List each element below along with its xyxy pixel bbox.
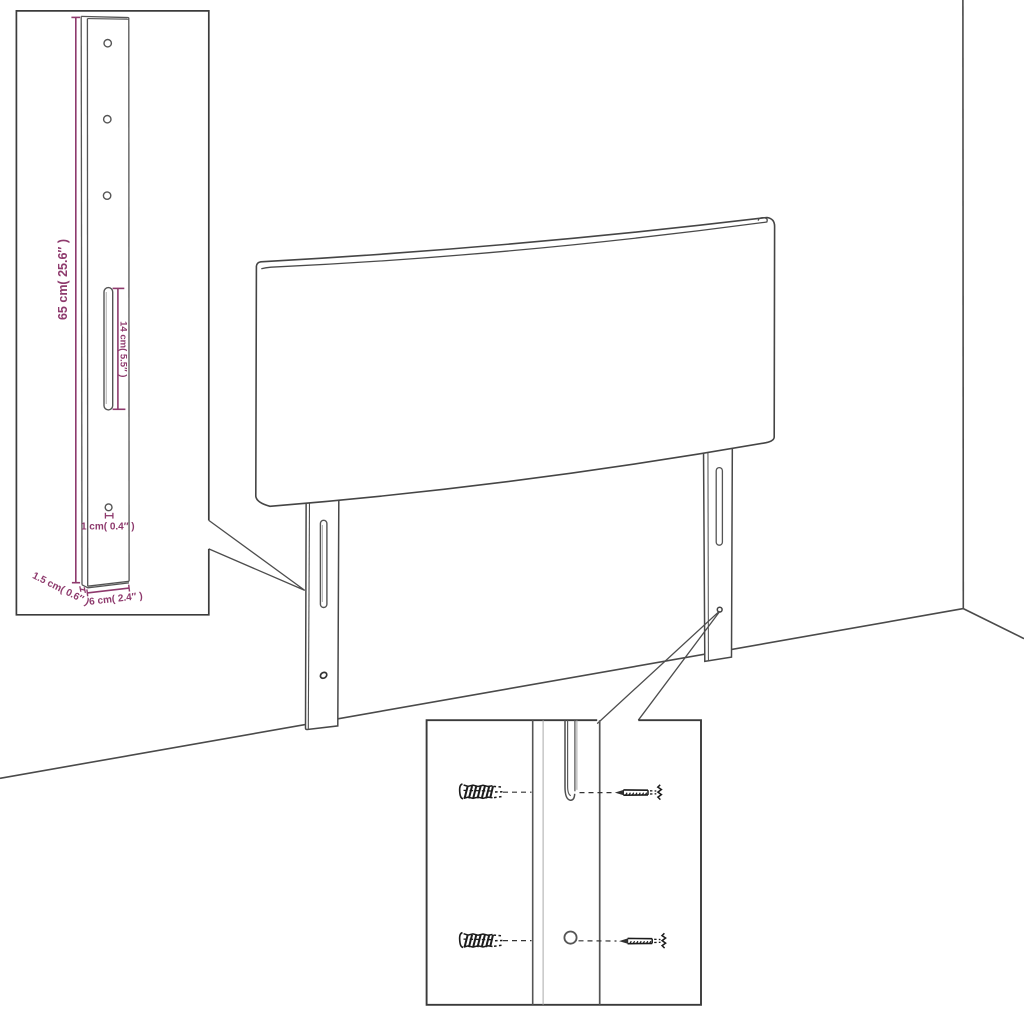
svg-text:1 cm( 0.4″ ): 1 cm( 0.4″ ) [81,522,135,533]
svg-text:65 cm( 25.6″ ): 65 cm( 25.6″ ) [56,239,70,320]
svg-text:14 cm( 5.5″ ): 14 cm( 5.5″ ) [118,321,129,377]
